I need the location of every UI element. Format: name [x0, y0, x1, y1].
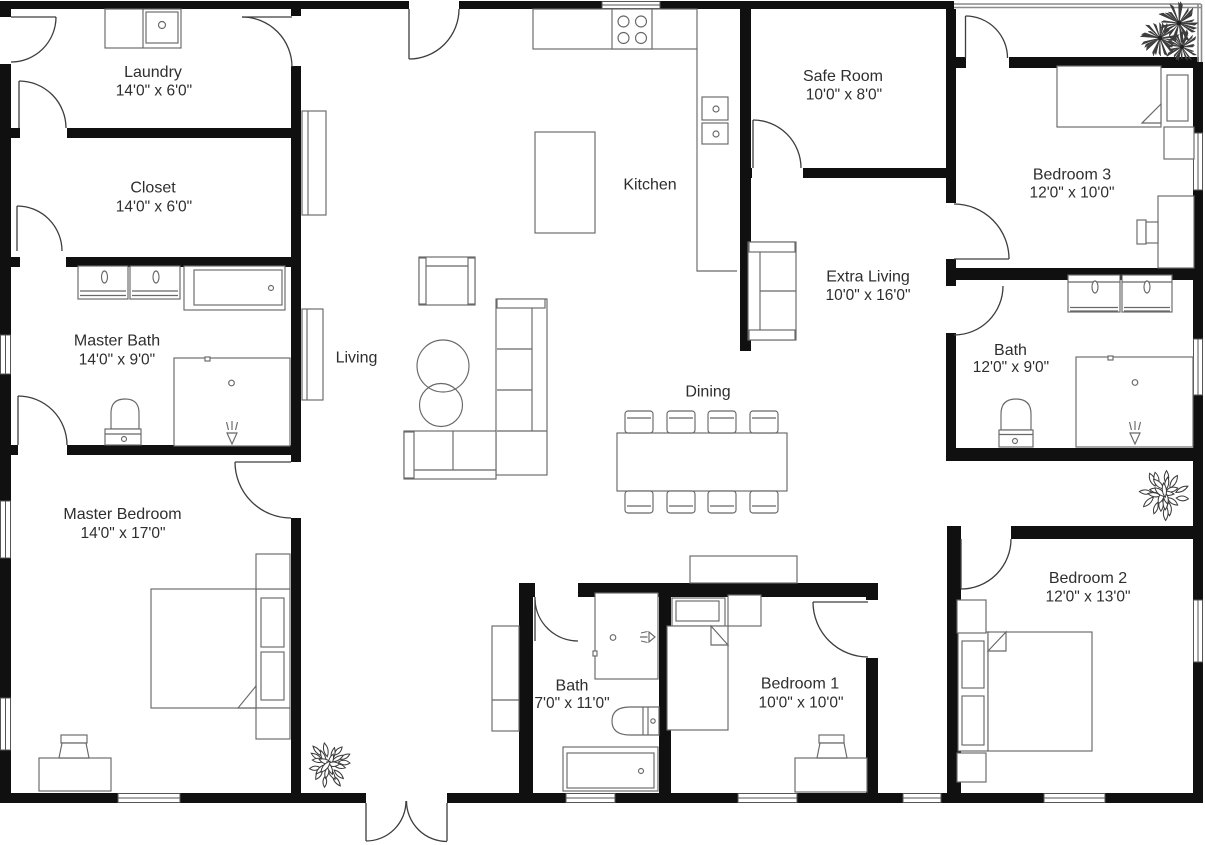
svg-text:14'0" x 17'0": 14'0" x 17'0": [80, 525, 165, 542]
svg-text:Bedroom 2: Bedroom 2: [1049, 570, 1127, 587]
svg-text:Master Bath: Master Bath: [74, 333, 160, 350]
svg-text:Living: Living: [336, 350, 378, 367]
svg-text:12'0" x 10'0": 12'0" x 10'0": [1029, 185, 1114, 202]
svg-text:12'0" x 13'0": 12'0" x 13'0": [1045, 589, 1130, 606]
svg-text:Laundry: Laundry: [124, 64, 182, 81]
svg-text:7'0" x 11'0": 7'0" x 11'0": [534, 695, 609, 712]
svg-text:14'0" x 6'0": 14'0" x 6'0": [116, 199, 192, 216]
svg-text:14'0" x 6'0": 14'0" x 6'0": [116, 83, 192, 100]
svg-text:Closet: Closet: [130, 180, 176, 197]
svg-text:Extra Living: Extra Living: [826, 269, 910, 286]
svg-text:10'0" x 10'0": 10'0" x 10'0": [758, 695, 843, 712]
svg-text:10'0" x 16'0": 10'0" x 16'0": [825, 287, 910, 304]
svg-text:Dining: Dining: [685, 384, 730, 401]
svg-text:10'0" x 8'0": 10'0" x 8'0": [806, 87, 882, 104]
svg-text:Bath: Bath: [994, 342, 1027, 359]
svg-text:14'0" x 9'0": 14'0" x 9'0": [79, 352, 155, 369]
svg-text:Kitchen: Kitchen: [623, 177, 676, 194]
svg-text:12'0" x 9'0": 12'0" x 9'0": [973, 359, 1049, 376]
svg-text:Bedroom 3: Bedroom 3: [1033, 167, 1111, 184]
svg-text:Bedroom 1: Bedroom 1: [761, 676, 839, 693]
svg-text:Master Bedroom: Master Bedroom: [63, 506, 181, 523]
svg-text:Safe Room: Safe Room: [803, 68, 883, 85]
svg-text:Bath: Bath: [556, 678, 589, 695]
